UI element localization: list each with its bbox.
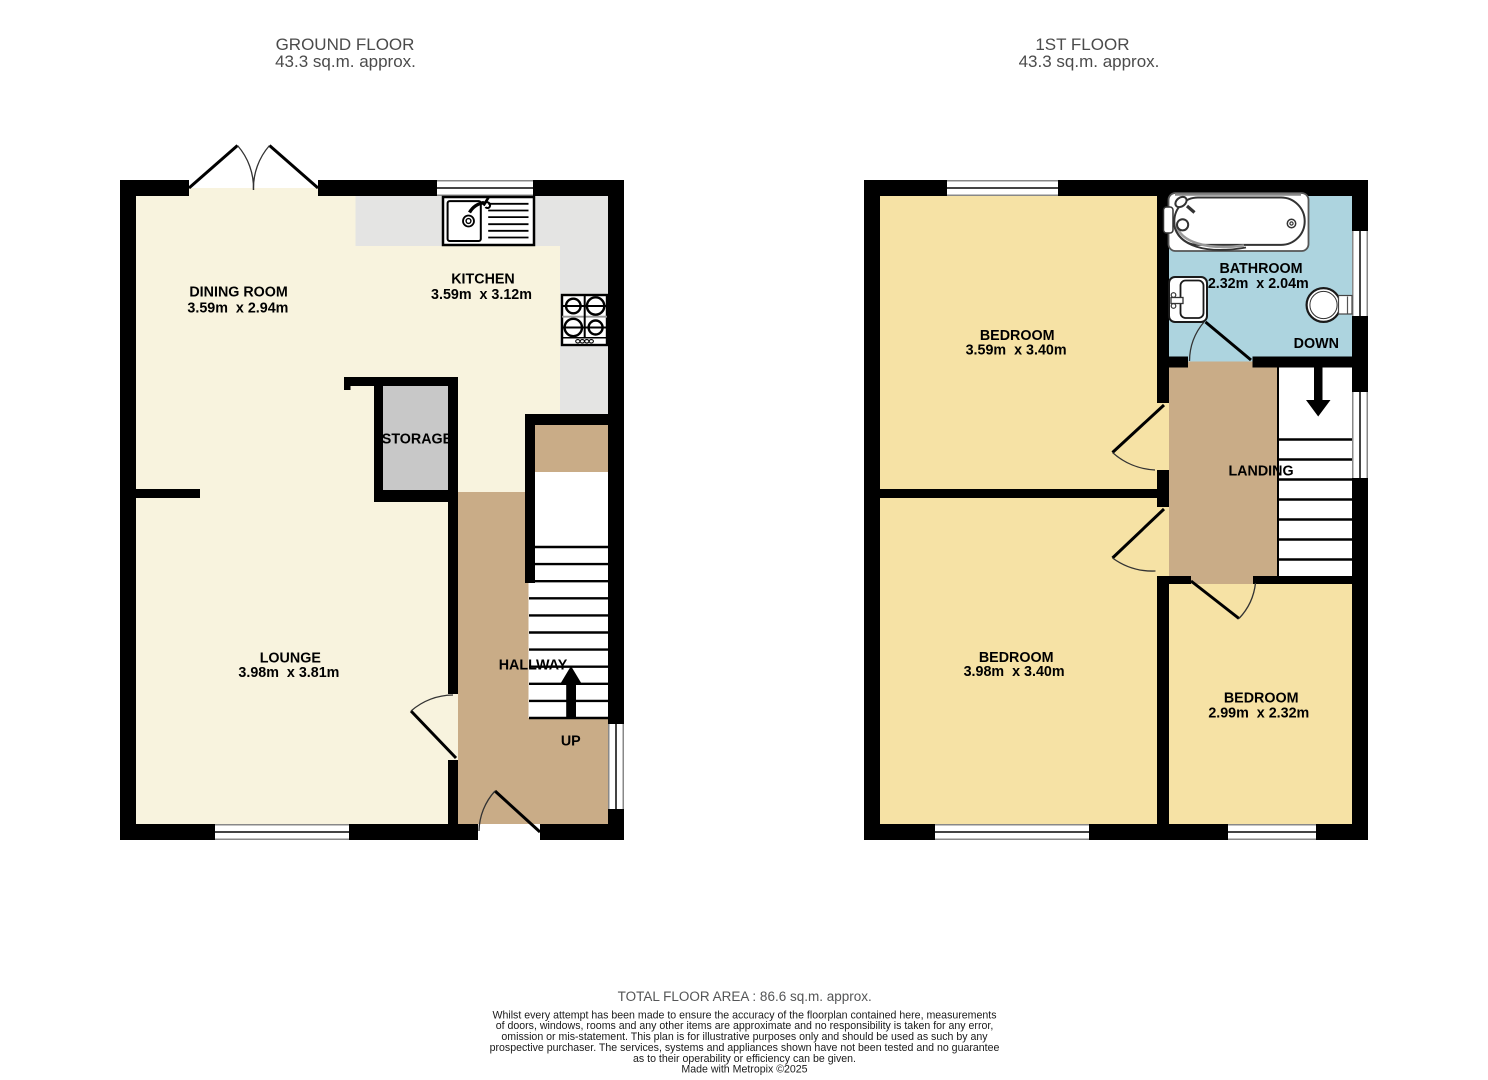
svg-text:LANDING: LANDING — [1228, 464, 1293, 480]
svg-text:BEDROOM: BEDROOM — [1224, 691, 1299, 707]
svg-text:3.59m x 2.94m: 3.59m x 2.94m — [187, 300, 288, 316]
svg-text:BATHROOM: BATHROOM — [1219, 261, 1302, 277]
svg-text:STORAGE: STORAGE — [382, 431, 452, 447]
svg-text:3.59m x 3.12m: 3.59m x 3.12m — [431, 287, 532, 303]
svg-text:Made with Metropix ©2025: Made with Metropix ©2025 — [681, 1064, 807, 1076]
svg-text:3.59m x 3.40m: 3.59m x 3.40m — [966, 343, 1067, 359]
svg-text:LOUNGE: LOUNGE — [260, 650, 321, 666]
svg-text:KITCHEN: KITCHEN — [451, 271, 515, 287]
svg-text:HALLWAY: HALLWAY — [499, 658, 568, 674]
svg-text:43.3 sq.m. approx.: 43.3 sq.m. approx. — [275, 52, 416, 71]
svg-text:43.3 sq.m. approx.: 43.3 sq.m. approx. — [1019, 52, 1160, 71]
svg-text:TOTAL FLOOR AREA : 86.6 sq.m.: TOTAL FLOOR AREA : 86.6 sq.m. approx. — [618, 989, 872, 1004]
svg-text:2.32m x 2.04m: 2.32m x 2.04m — [1208, 276, 1309, 292]
svg-text:2.99m x 2.32m: 2.99m x 2.32m — [1208, 705, 1309, 721]
svg-text:3.98m x 3.40m: 3.98m x 3.40m — [964, 664, 1065, 680]
svg-text:DOWN: DOWN — [1294, 336, 1339, 352]
svg-text:UP: UP — [561, 734, 581, 750]
svg-text:3.98m x 3.81m: 3.98m x 3.81m — [238, 665, 339, 681]
svg-text:DINING ROOM: DINING ROOM — [189, 285, 288, 301]
